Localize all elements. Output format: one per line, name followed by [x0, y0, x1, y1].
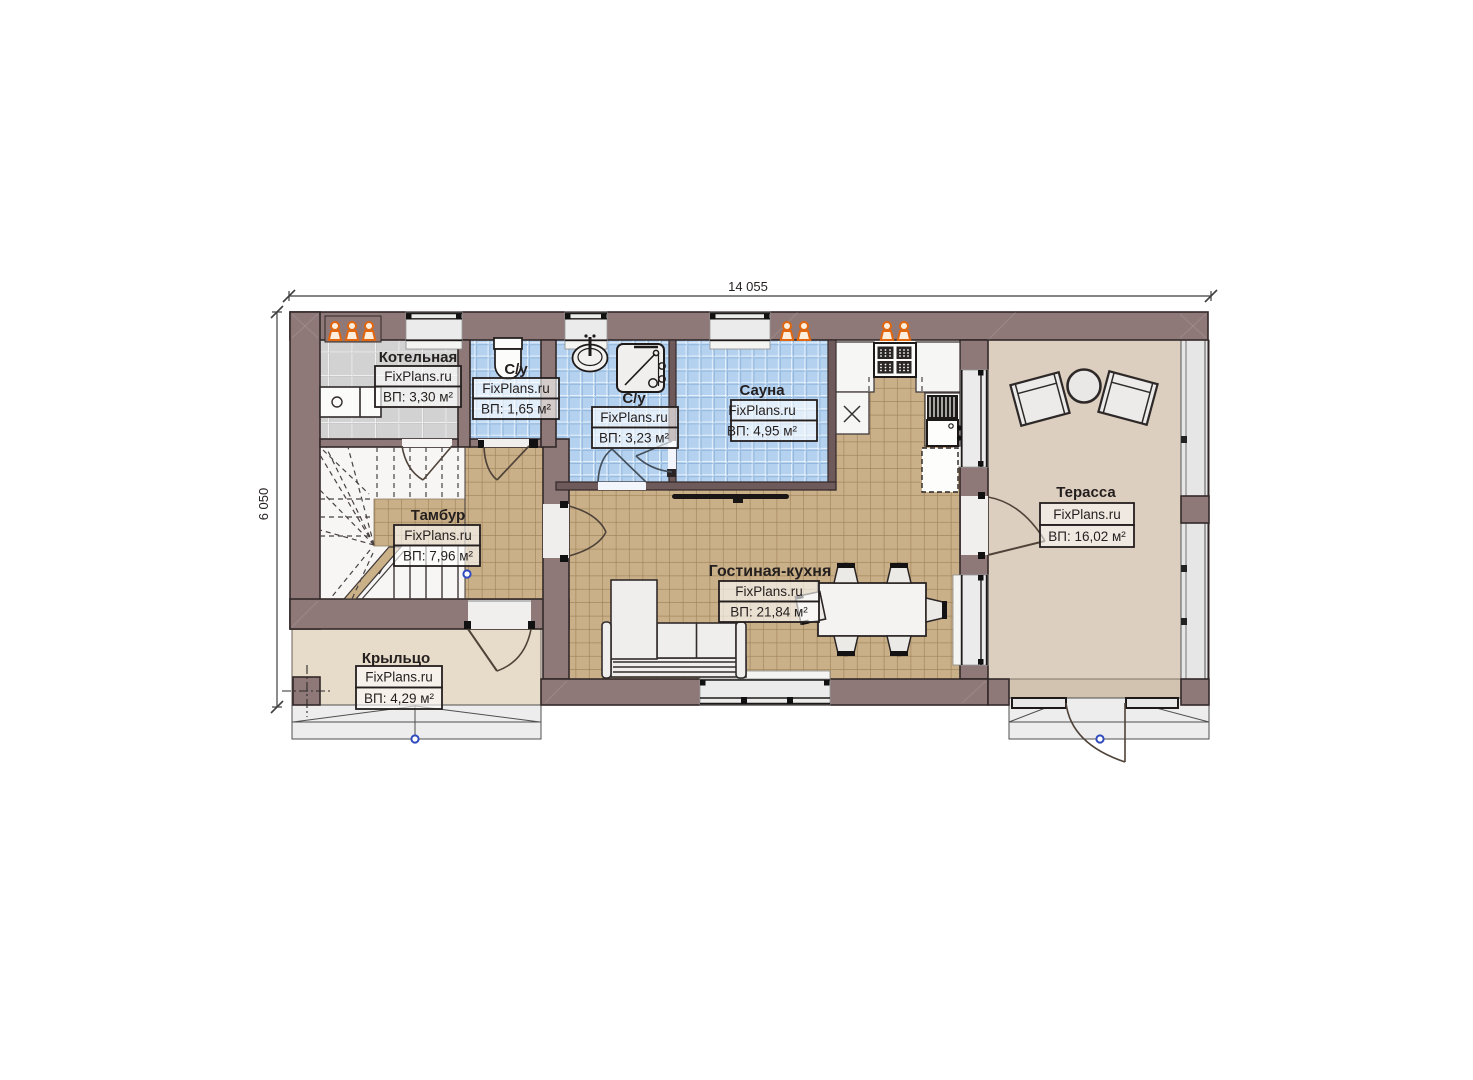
svg-text:6 050: 6 050 — [256, 488, 271, 521]
svg-text:FixPlans.ru: FixPlans.ru — [1053, 507, 1121, 522]
svg-text:ВП: 7,96 м²: ВП: 7,96 м² — [403, 549, 474, 564]
svg-text:Котельная: Котельная — [379, 349, 458, 366]
svg-text:FixPlans.ru: FixPlans.ru — [600, 410, 668, 425]
svg-text:Гостиная-кухня: Гостиная-кухня — [709, 563, 832, 580]
svg-text:ВП: 3,23 м²: ВП: 3,23 м² — [599, 431, 670, 446]
svg-text:ВП: 4,95 м²: ВП: 4,95 м² — [727, 424, 798, 439]
svg-text:Сауна: Сауна — [739, 382, 785, 399]
svg-text:14 055: 14 055 — [728, 279, 768, 294]
svg-text:Крыльцо: Крыльцо — [362, 650, 430, 667]
svg-text:Терасса: Терасса — [1056, 484, 1116, 501]
svg-text:ВП: 1,65 м²: ВП: 1,65 м² — [481, 402, 552, 417]
svg-text:ВП: 21,84 м²: ВП: 21,84 м² — [730, 605, 808, 620]
svg-text:Тамбур: Тамбур — [411, 507, 465, 524]
svg-text:С/у: С/у — [504, 361, 528, 378]
svg-text:FixPlans.ru: FixPlans.ru — [728, 403, 796, 418]
svg-text:FixPlans.ru: FixPlans.ru — [384, 369, 452, 384]
svg-text:С/у: С/у — [622, 390, 646, 407]
svg-text:FixPlans.ru: FixPlans.ru — [365, 670, 433, 685]
svg-text:ВП: 4,29 м²: ВП: 4,29 м² — [364, 691, 435, 706]
svg-text:FixPlans.ru: FixPlans.ru — [735, 584, 803, 599]
svg-text:ВП: 16,02 м²: ВП: 16,02 м² — [1048, 529, 1126, 544]
svg-text:FixPlans.ru: FixPlans.ru — [404, 528, 472, 543]
svg-text:ВП: 3,30 м²: ВП: 3,30 м² — [383, 390, 454, 405]
svg-text:FixPlans.ru: FixPlans.ru — [482, 381, 550, 396]
